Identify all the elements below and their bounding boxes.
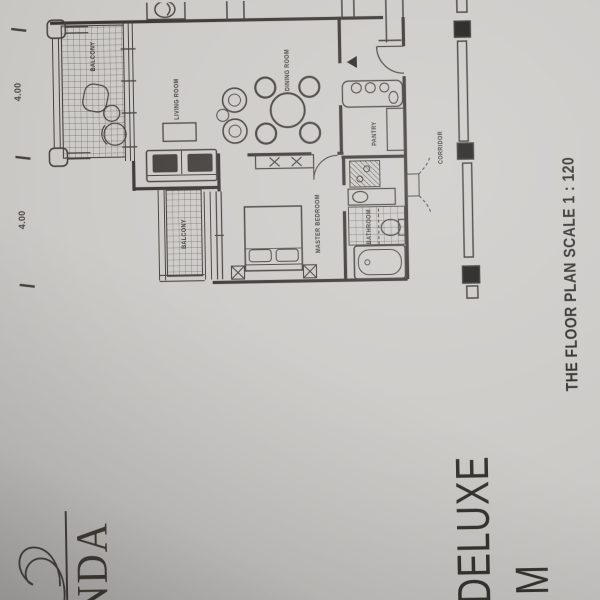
room-label-balcony-bedroom: BALCONY bbox=[182, 219, 189, 249]
floor-plan-drawing bbox=[0, 0, 600, 600]
sink-icon bbox=[348, 188, 395, 205]
unit-title-line2: M bbox=[509, 565, 556, 596]
dimension-label: 4.00 bbox=[18, 210, 27, 229]
bathtub-icon bbox=[354, 245, 406, 279]
living-room-furniture bbox=[145, 88, 248, 182]
balcony-bedroom-group bbox=[158, 187, 225, 281]
wardrobe-icon bbox=[350, 161, 380, 188]
logo-flourish-icon bbox=[4, 530, 67, 600]
room-label-balcony-main: BALCONY bbox=[90, 42, 97, 72]
wall-stubs-cut-edge bbox=[227, 0, 404, 45]
room-label-pantry: PANTRY bbox=[372, 121, 378, 145]
logo-text: NDA bbox=[70, 521, 116, 600]
counter-return-icon bbox=[387, 108, 405, 150]
dresser-icon bbox=[255, 155, 313, 169]
stove-burners-icon bbox=[351, 82, 398, 104]
door-swing-icon bbox=[313, 155, 337, 179]
service-niche bbox=[406, 158, 431, 212]
master-bedroom-furniture bbox=[229, 154, 339, 279]
room-label-master-bedroom: MASTER BEDROOM bbox=[315, 194, 322, 253]
bathroom-fixtures bbox=[348, 158, 432, 279]
bed-icon bbox=[244, 206, 302, 271]
sofa-icon bbox=[146, 149, 217, 181]
ac-unit-icon bbox=[147, 0, 185, 20]
photographed-floor-plan-page: 4.00 4.00 BALCONY LIVING ROOM DINING ROO… bbox=[0, 0, 600, 600]
armchair-icon bbox=[216, 88, 247, 144]
tv-console-icon bbox=[163, 123, 196, 142]
room-label-living-room: LIVING ROOM bbox=[174, 78, 181, 119]
room-label-dining-room: DINING ROOM bbox=[285, 49, 292, 91]
corridor-grid-line bbox=[454, 0, 480, 298]
dimension-ticks bbox=[11, 29, 34, 287]
dining-table-icon bbox=[270, 93, 305, 128]
document-content: 4.00 4.00 BALCONY LIVING ROOM DINING ROO… bbox=[0, 0, 600, 600]
room-label-bathroom: BATHROOM bbox=[366, 209, 373, 244]
nightstand-icon bbox=[231, 265, 316, 279]
unit-title-line1: DELUXE bbox=[449, 455, 498, 600]
scale-note: THE FLOOR PLAN SCALE 1 : 120 bbox=[560, 157, 581, 392]
room-label-corridor: CORRIDOR bbox=[438, 131, 445, 164]
dimension-label: 4.00 bbox=[14, 82, 23, 101]
entry-door-swing-icon bbox=[377, 46, 404, 73]
entry-marker-icon bbox=[347, 56, 357, 68]
